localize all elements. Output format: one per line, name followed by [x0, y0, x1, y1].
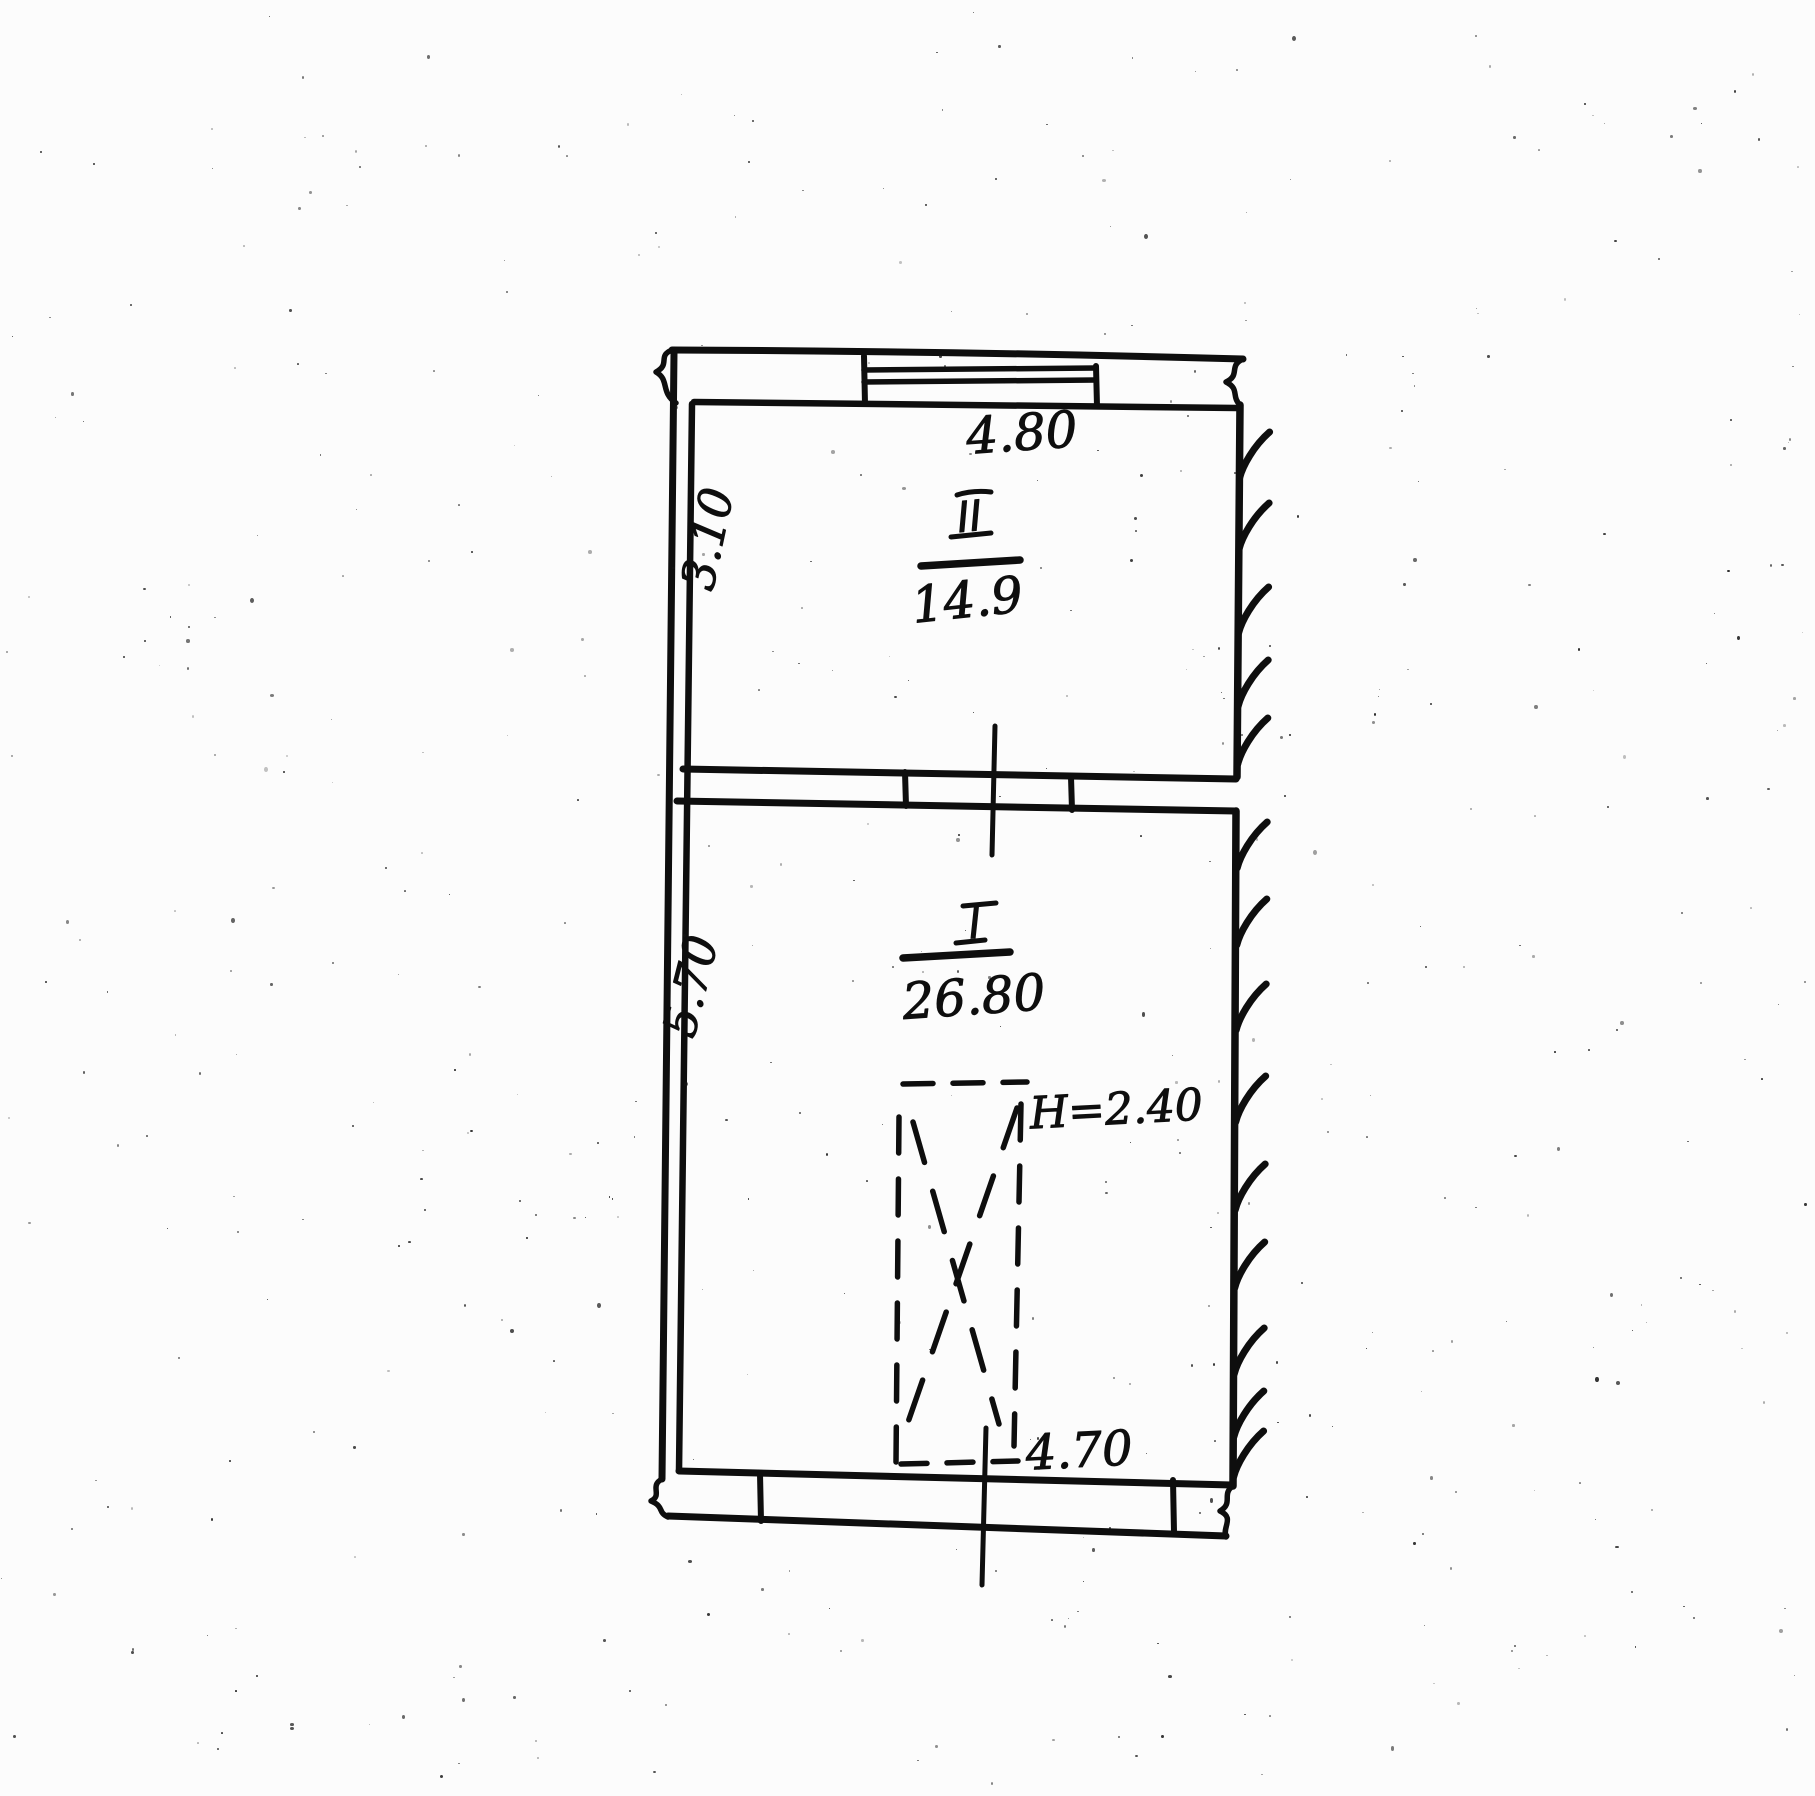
hatch-mark: [1239, 587, 1269, 633]
room1-numeral-underline: [956, 940, 985, 943]
floor-plan-sketch: II 14.9 I 26.80 4.80 3.10 5.70 H=2.40 4.…: [0, 0, 1815, 1792]
hatch-mark: [1237, 899, 1267, 945]
dashed-structure-x: [896, 1082, 1027, 1464]
bottom-wall-outer-line: [668, 1516, 1226, 1536]
dashed-x-diagonal-1: [913, 1122, 999, 1424]
ceiling-height-note: H=2.40: [1027, 1080, 1204, 1140]
room1-label: I 26.80: [899, 899, 1047, 1031]
right-wall-upper-segment: [1237, 405, 1240, 777]
divider-door-jamb-left: [905, 772, 906, 806]
window-jamb-right: [1096, 366, 1097, 406]
divider-bottom-line: [677, 801, 1236, 811]
room2-area-value: 14.9: [909, 565, 1026, 634]
wall-break-top-right: [1226, 359, 1243, 405]
room2-fraction-bar: [921, 560, 1020, 566]
hatch-mark: [1237, 822, 1267, 868]
divider-door-jamb-right: [1071, 777, 1072, 810]
hatch-mark: [1235, 1242, 1265, 1288]
outer-walls: [651, 350, 1243, 1537]
wall-break-bottom-left: [651, 1479, 668, 1517]
dashed-box-right: [1014, 1104, 1021, 1446]
hatch-mark: [1234, 1328, 1264, 1374]
hatch-mark: [1234, 1391, 1264, 1437]
dim-top-width-label: 4.80: [963, 400, 1079, 466]
window-symbol: [864, 356, 1097, 406]
window-jamb-left: [864, 356, 865, 404]
left-wall-outer-line: [662, 353, 674, 1479]
hatch-mark: [1236, 1076, 1266, 1122]
hatch-mark: [1240, 432, 1270, 478]
divider-door-axis-line: [992, 726, 995, 855]
room2-numeral-underline: [951, 533, 991, 537]
entrance-jamb-right: [1173, 1480, 1174, 1532]
hatch-mark: [1234, 1431, 1264, 1477]
dim-upper-depth-label: 3.10: [670, 483, 744, 594]
window-glazing-line-2: [864, 380, 1096, 382]
top-wall-outer-line: [672, 350, 1243, 359]
right-wall-lower-segment: [1233, 811, 1236, 1486]
entrance-door-axis-line: [982, 1428, 986, 1585]
dashed-box-bottom: [901, 1461, 1018, 1464]
window-glazing-line-1: [864, 368, 1096, 370]
room2-label: II 14.9: [909, 491, 1026, 635]
scanned-floor-plan-page: II 14.9 I 26.80 4.80 3.10 5.70 H=2.40 4.…: [0, 0, 1815, 1792]
wall-break-bottom-right: [1220, 1486, 1233, 1537]
room-divider-wall: [677, 726, 1236, 855]
dim-bottom-width-label: 4.70: [1023, 1420, 1134, 1482]
room1-area-value: 26.80: [899, 963, 1047, 1031]
dim-lower-depth-label: 5.70: [652, 930, 729, 1042]
hatch-mark: [1239, 503, 1269, 549]
entrance-jamb-left: [760, 1474, 761, 1521]
hatch-mark: [1235, 1164, 1265, 1210]
room1-fraction-bar: [903, 952, 1010, 958]
hatch-mark: [1238, 718, 1268, 764]
hatch-mark: [1236, 984, 1266, 1030]
dashed-box-left: [896, 1117, 899, 1462]
dashed-box-top: [903, 1082, 1027, 1084]
hatch-mark: [1238, 660, 1268, 706]
divider-top-line: [683, 769, 1236, 779]
